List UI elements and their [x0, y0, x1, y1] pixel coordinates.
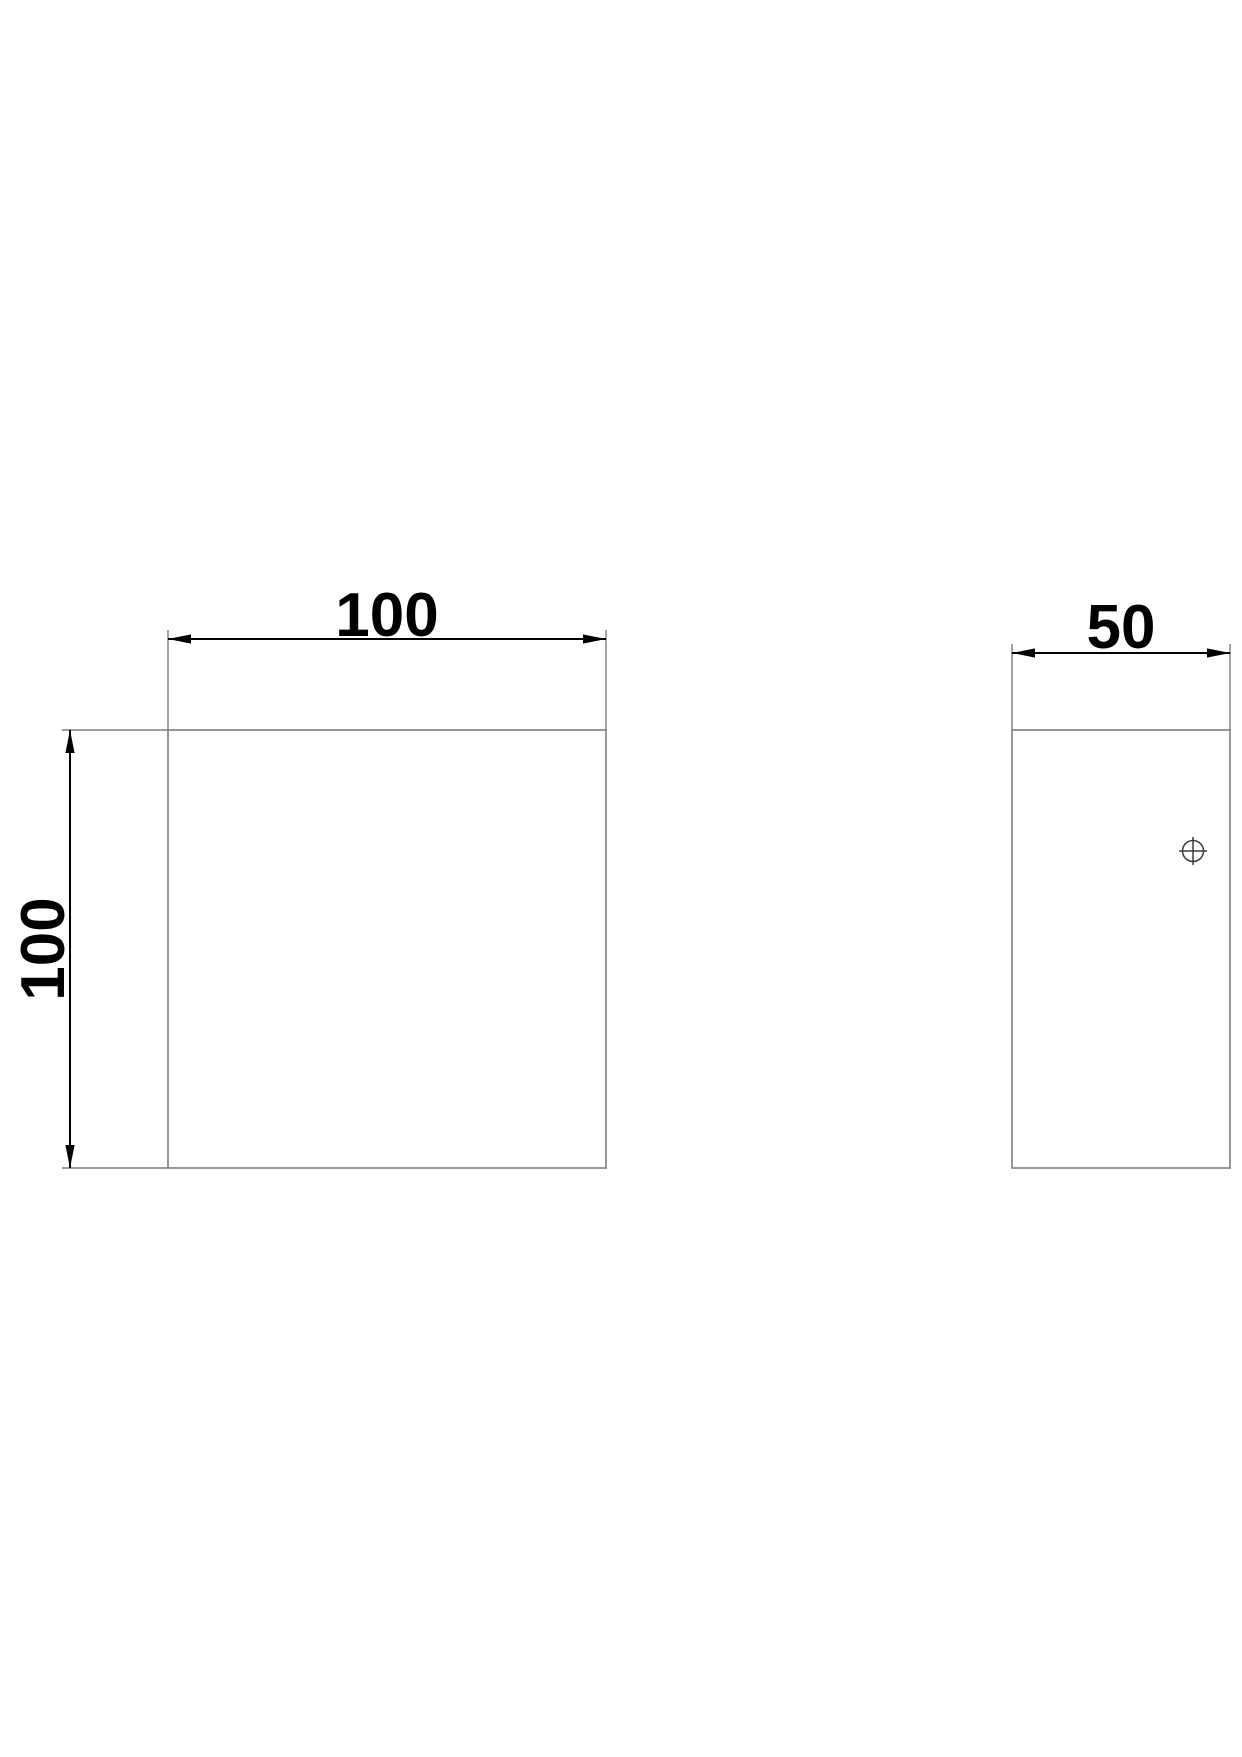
- side-view-outline: [1012, 730, 1230, 1168]
- arrowhead-right-icon: [583, 634, 606, 643]
- side-width-dimension: 50: [1012, 593, 1230, 730]
- arrowhead-up-icon: [65, 730, 74, 753]
- drawing-sheet: 100 100 50: [0, 0, 1242, 1757]
- front-height-label: 100: [9, 897, 78, 1000]
- front-view: 100 100: [9, 581, 606, 1168]
- front-height-dimension: 100: [9, 730, 168, 1168]
- arrowhead-left-icon: [1012, 648, 1035, 657]
- hole-crosshair-icon: [1179, 837, 1207, 865]
- front-width-label: 100: [335, 581, 438, 650]
- arrowhead-left-icon: [168, 634, 191, 643]
- side-width-label: 50: [1087, 593, 1156, 662]
- cad-drawing-canvas: 100 100 50: [0, 0, 1242, 1757]
- arrowhead-down-icon: [65, 1145, 74, 1168]
- arrowhead-right-icon: [1207, 648, 1230, 657]
- side-view: 50: [1012, 593, 1230, 1168]
- front-view-outline: [168, 730, 606, 1168]
- front-width-dimension: 100: [168, 581, 606, 730]
